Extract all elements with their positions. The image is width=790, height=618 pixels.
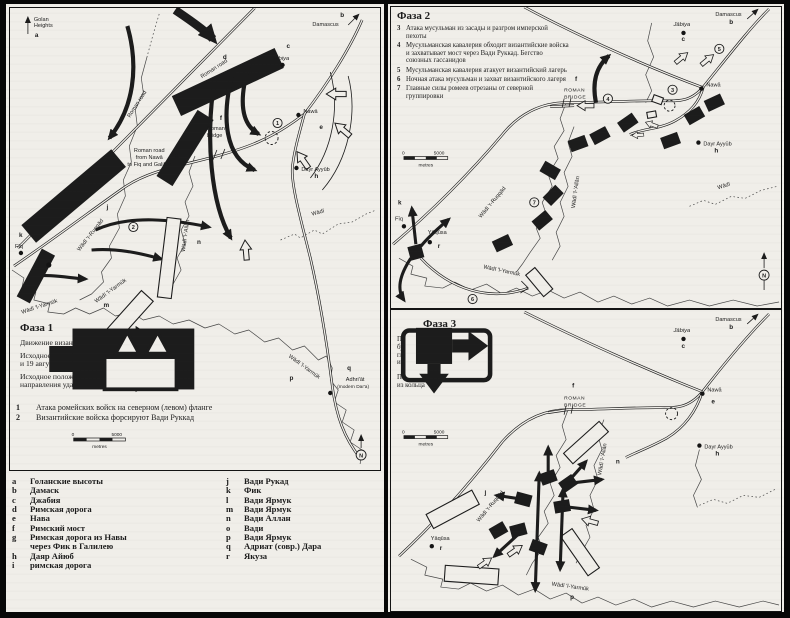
key-m: m	[103, 302, 109, 309]
index-key: r	[226, 552, 244, 561]
circled-6: 6	[468, 294, 477, 303]
legend-item: Попытки ромеев вырваться из кольца	[397, 374, 517, 390]
key-g: g	[175, 152, 179, 159]
svg-text:metres: metres	[92, 444, 107, 450]
svg-text:0: 0	[72, 432, 75, 438]
svg-text:0: 0	[402, 151, 405, 157]
town-dot-dayr-ayyub	[697, 443, 701, 447]
key-k: k	[398, 199, 402, 206]
phase1-map-svg: 1 2 Golan Heights a b Damascus c Jābiya …	[10, 8, 380, 470]
note-number: 7	[397, 85, 406, 100]
label-wadi-yarmuk-m: Wādī 'l-Yarmūk	[94, 278, 128, 305]
label-damascus: Damascus	[715, 317, 741, 323]
label-wadi-allan: Wādī 'l-'Allān	[181, 219, 191, 252]
label-wadi-ruqqad: Wādī 'r-Ruqqād	[76, 218, 105, 252]
key-e: e	[711, 399, 715, 406]
index-column-1: aГоланские высоты bДамаск cДжабия dРимск…	[12, 477, 226, 570]
note-number: 2	[16, 413, 36, 422]
label-roman-bridge-2: bridge	[207, 133, 222, 139]
label-nawa: Nawā	[303, 109, 318, 115]
svg-text:1: 1	[276, 121, 279, 127]
svg-text:5: 5	[718, 47, 721, 53]
label-fiq: Fīq	[15, 244, 23, 250]
town-dot-nawa	[296, 113, 300, 117]
note-row: 7Главные силы ромеев отрезаны от северно…	[397, 85, 569, 100]
label-damascus: Damascus	[312, 22, 338, 28]
key-e: e	[319, 124, 323, 131]
legend-item: Исходное положение (возможно) исламских …	[20, 373, 280, 390]
svg-text:5000: 5000	[111, 432, 122, 438]
roman-breakout-icon	[397, 318, 517, 397]
index-text: Вади Аллан	[244, 514, 372, 523]
compass: N	[759, 254, 769, 290]
key-n: n	[197, 239, 201, 246]
key-n: n	[616, 458, 620, 465]
key-b: b	[340, 12, 344, 19]
index-column-2: jВади Рукад kФик lВади Ярмук mВади Ярмук…	[226, 477, 376, 570]
town-dot-nawa	[699, 87, 703, 91]
note-row: 1Атака ромейских войск на северном (лево…	[16, 403, 361, 412]
note-text: Византийские войска форсируют Вади Рукка…	[36, 413, 194, 422]
label-wadi-ruqqad: Wādī 'r-Ruqqād	[478, 186, 507, 220]
index-text: Римская дорога из Навы через Фик в Галил…	[30, 533, 148, 552]
label-wadi: Wādī	[717, 181, 732, 191]
note-text: Мусульманская кавалерия атакует византий…	[406, 67, 569, 75]
index-key: g	[12, 533, 30, 552]
phase2-title: Фаза 2	[397, 10, 569, 23]
label-jabiya: Jābiya	[673, 22, 691, 28]
svg-text:metres: metres	[419, 162, 434, 168]
phase1-panel: 1 2 Golan Heights a b Damascus c Jābiya …	[6, 4, 384, 612]
label-road-nawa-1: Roman road	[134, 148, 165, 154]
svg-text:5000: 5000	[434, 151, 445, 157]
town-dot-yaqusa	[428, 240, 432, 244]
camp-tent	[647, 111, 657, 118]
wadi-east	[693, 450, 701, 508]
scale-bar: 0 5000 metres	[72, 432, 126, 450]
wadi-dotted-east	[689, 186, 777, 206]
town-dot-fiq	[19, 251, 23, 255]
phase3-legend: Фаза 3 Под прикрытием пыльной бури мусул…	[397, 318, 517, 397]
label-damascus: Damascus	[715, 12, 741, 18]
note-number: 6	[397, 76, 406, 84]
key-h: h	[314, 173, 318, 180]
wadi-yarmuk	[399, 258, 779, 306]
svg-text:7: 7	[533, 201, 536, 207]
circled-7: 7	[530, 198, 539, 207]
wadi-dotted-east	[281, 210, 376, 240]
index-text: Якуза	[244, 552, 372, 561]
index-key: i	[12, 561, 30, 570]
svg-text:6: 6	[471, 297, 474, 303]
compass: N	[356, 436, 366, 460]
note-number: 4	[397, 42, 406, 65]
wadi-dotted-east	[699, 489, 775, 505]
svg-text:N: N	[359, 453, 363, 459]
note-text: Атака мусульман из засады и разгром импе…	[406, 25, 569, 40]
label-golan-2: Heights	[34, 23, 53, 29]
town-dot-jabiya	[280, 63, 284, 67]
key-h: h	[715, 451, 719, 458]
note-row: 6Ночная атака мусульман и захват византи…	[397, 76, 569, 84]
note-row: 4Мусульманская кавалерия обходит византи…	[397, 42, 569, 65]
key-f: f	[575, 76, 578, 83]
key-f: f	[572, 383, 575, 390]
svg-text:metres: metres	[419, 442, 434, 448]
key-j: j	[105, 204, 108, 211]
town-dot-dayr-ayyub	[696, 140, 700, 144]
camp-dashed-circle	[666, 408, 678, 420]
key-j: j	[484, 489, 487, 496]
svg-text:3: 3	[671, 88, 674, 94]
scanned-battle-map-page: 1 2 Golan Heights a b Damascus c Jābiya …	[0, 0, 790, 618]
key-a: a	[35, 32, 39, 39]
note-text: Главные силы ромеев отрезаны от северной…	[406, 85, 569, 100]
note-number: 3	[397, 25, 406, 40]
label-adhriat-2: (modern Dar'a)	[337, 384, 369, 390]
circled-5: 5	[715, 44, 724, 53]
index-key: k	[226, 486, 244, 495]
note-text: Ночная атака мусульман и захват византий…	[406, 76, 569, 84]
svg-text:N: N	[762, 273, 766, 279]
key-r: r	[438, 243, 441, 250]
note-row: 3Атака мусульман из засады и разгром имп…	[397, 25, 569, 40]
phases23-panel: 3 4 5 6 7 Jābiya c Damascus b Nawā Dayr …	[388, 4, 784, 612]
label-wadi-allan: Wādī 'l-'Allān	[597, 443, 608, 476]
label-yaqusa: Yāqūsa	[428, 230, 448, 236]
town-dot-jabiya	[681, 31, 685, 35]
index-row: gРимская дорога из Навы через Фик в Гали…	[12, 533, 226, 552]
note-text: Атака ромейских войск на северном (левом…	[36, 403, 212, 412]
letter-index: aГоланские высоты bДамаск cДжабия dРимск…	[12, 477, 378, 570]
label-road-nawa-2: from Nawā	[136, 155, 164, 161]
phase2-map-frame: 3 4 5 6 7 Jābiya c Damascus b Nawā Dayr …	[390, 6, 782, 309]
label-wadi-o: Wādī	[311, 208, 326, 218]
key-h: h	[714, 148, 718, 155]
phase1-map-frame: 1 2 Golan Heights a b Damascus c Jābiya …	[9, 7, 381, 471]
label-bridge-caps: BRIDGE	[564, 403, 586, 409]
byzantine-arrows	[30, 10, 259, 279]
wadi-north	[646, 23, 654, 103]
muslim-position-bar	[526, 268, 553, 297]
town-dot-nawa	[700, 392, 704, 396]
damascus-arrow	[348, 15, 358, 25]
svg-text:0: 0	[402, 430, 405, 436]
svg-text:2: 2	[132, 225, 135, 231]
label-jabiya: Jābiya	[673, 328, 691, 334]
key-f: f	[220, 115, 223, 122]
label-roman-caps: ROMAN	[564, 396, 585, 402]
wadi-ruqqad	[516, 103, 566, 272]
key-r: r	[440, 545, 443, 552]
town-dot-jabiya	[681, 337, 685, 341]
label-fiq: Fīq	[395, 216, 403, 222]
index-key: h	[12, 552, 30, 561]
index-row: iримская дорога	[12, 561, 226, 570]
phase1-legend: Фаза 1 Движение византийских войск Исход…	[20, 322, 280, 394]
islamic-position-icon	[20, 323, 280, 395]
note-row: 5Мусульманская кавалерия атакует византи…	[397, 67, 569, 75]
circled-3: 3	[668, 85, 677, 94]
key-q: q	[347, 365, 351, 372]
note-number: 1	[16, 403, 36, 412]
label-roman-bridge-1: Roman	[207, 126, 225, 132]
label-wadi-allan: Wādī 'l-'Allān	[571, 176, 581, 209]
key-c: c	[287, 43, 291, 50]
label-yaqusa: Yāqūsa	[431, 536, 451, 542]
circled-1: 1	[273, 118, 282, 127]
town-dot-dayr-ayyub	[294, 166, 298, 170]
town-dot-adhriat	[328, 391, 332, 395]
key-k: k	[19, 232, 23, 239]
index-text: Вади Рукад	[244, 477, 372, 486]
label-wadi-yarmuk: Wādī 'l-Yarmūk	[551, 582, 589, 593]
note-number: 5	[397, 67, 406, 75]
town-dot-yaqusa	[430, 544, 434, 548]
byzantine-position-bar	[156, 110, 213, 186]
note-row: 2Византийские войска форсируют Вади Рукк…	[16, 413, 361, 422]
key-b: b	[729, 19, 733, 26]
label-wadi-yarmuk: Wādī 'l-Yarmūk	[483, 264, 521, 278]
label-jabiya: Jābiya	[272, 56, 290, 62]
scale-bar: 0 5000 metres	[402, 151, 448, 169]
scale-bar: 0 5000 metres	[402, 430, 448, 448]
phase2-header: Фаза 2 3Атака мусульман из засады и разг…	[397, 10, 569, 102]
note-text: Мусульманская кавалерия обходит византий…	[406, 42, 569, 65]
key-b: b	[729, 324, 733, 331]
index-row: rЯкуза	[226, 552, 376, 561]
town-dot-fiq	[402, 224, 406, 228]
label-nawa: Nawā	[707, 388, 722, 394]
damascus-arrow	[747, 315, 757, 324]
label-wadi-ruqqad: Wādī 'r-Ruqqād	[476, 490, 505, 524]
damascus-arrow	[747, 10, 757, 19]
index-text: римская дорога	[30, 561, 148, 570]
key-c: c	[682, 36, 686, 43]
key-p: p	[289, 375, 293, 382]
muslim-blocks	[492, 93, 725, 252]
label-nawa: Nawā	[706, 83, 721, 89]
camp-tent	[652, 95, 664, 105]
unit-dot	[46, 262, 51, 267]
svg-text:5000: 5000	[434, 430, 445, 436]
circled-4: 4	[603, 94, 612, 103]
phase1-notes: 1Атака ромейских войск на северном (лево…	[16, 402, 361, 422]
wadi-ruqqad-upper-dotted	[147, 14, 159, 56]
phase3-map-frame: Jābiya c Damascus b Nawā e Dayr Ayyūb h …	[390, 309, 782, 612]
key-p: p	[570, 594, 574, 601]
circled-2: 2	[129, 222, 138, 231]
label-adhriat-1: Adhri'āt	[346, 377, 365, 383]
label-road-nawa-3: to Fiq and Galilee	[127, 162, 171, 168]
key-c: c	[682, 343, 686, 350]
